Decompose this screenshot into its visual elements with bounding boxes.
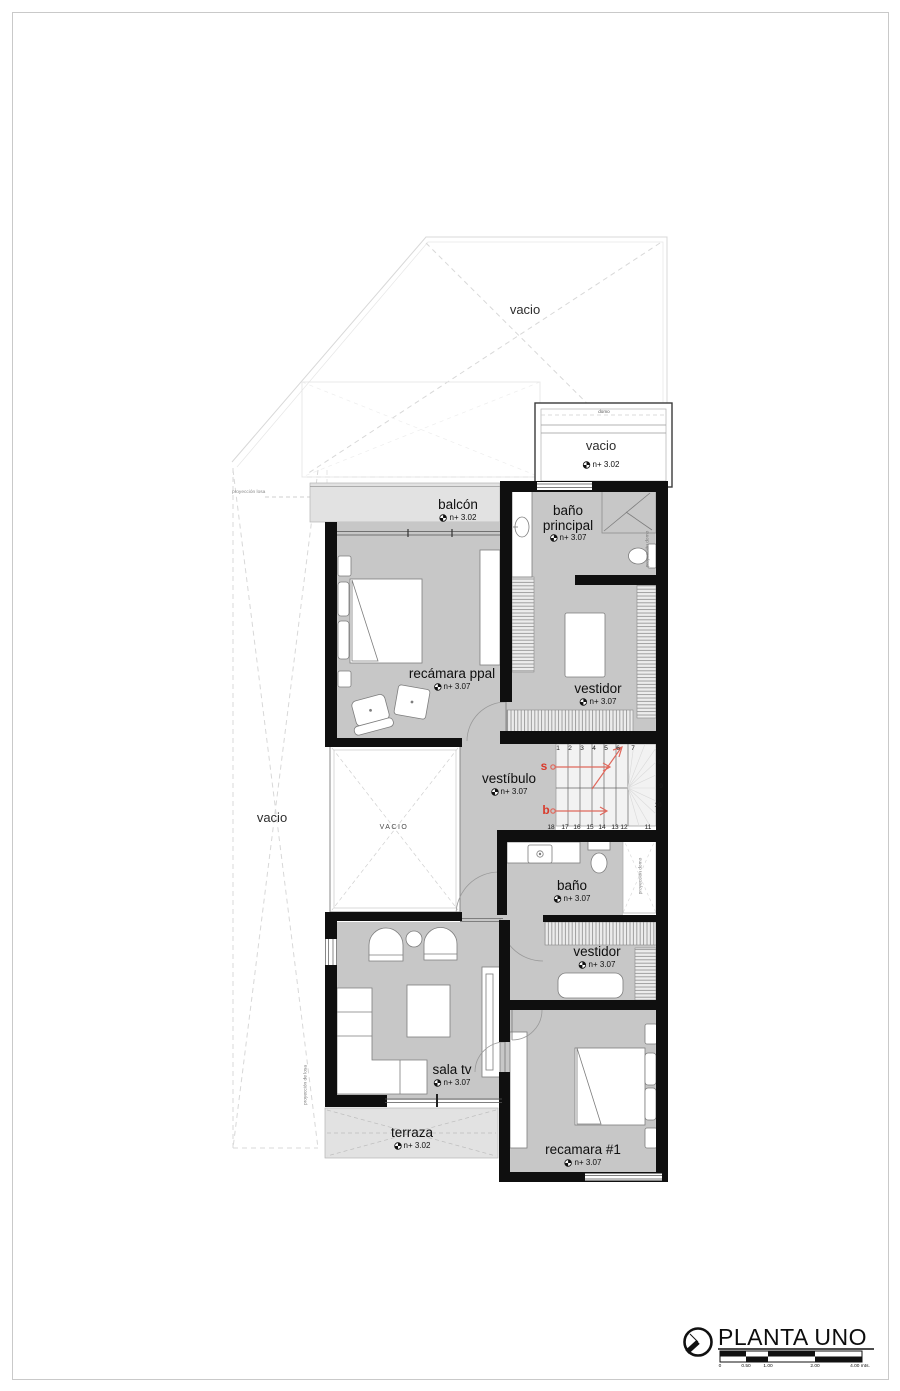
level-marker-icon (491, 788, 499, 796)
closet-island-south (558, 973, 623, 998)
level-value: n+ 3.07 (589, 961, 616, 970)
projection-domo-label-1: proyección domo (646, 531, 651, 568)
room-label-recamara-ppal: recámara ppal n+ 3.07 (409, 667, 495, 691)
level-value: n+ 3.02 (450, 514, 477, 523)
room-label-bano-principal: baño principal n+ 3.07 (543, 504, 593, 543)
level-value: n+ 3.07 (501, 788, 528, 797)
stair-number: 16 (573, 824, 580, 831)
level-value: n+ 3.07 (564, 895, 591, 904)
stair-number: 8 (658, 759, 662, 766)
room-label-vestidor-sur: vestidor n+ 3.07 (573, 945, 620, 969)
stair-number: 5 (604, 745, 608, 752)
level-marker-icon (583, 461, 591, 469)
stair-number: 13 (611, 824, 618, 831)
domo-label: domo (598, 409, 610, 414)
closet-island-north (565, 613, 605, 677)
stair-number: 2 (568, 745, 572, 752)
level-marker-icon (580, 698, 588, 706)
room-label-terraza: terraza n+ 3.02 (391, 1126, 433, 1150)
scale-tick: 1.00 (763, 1364, 772, 1369)
level-marker-icon (554, 895, 562, 903)
stair-number: 12 (620, 824, 627, 831)
void-label-side: vacio (257, 810, 287, 825)
void-label-interior: VACIO (380, 824, 409, 831)
room-name: sala tv (432, 1063, 471, 1078)
level-marker-icon (394, 1142, 402, 1150)
room-name: recámara ppal (409, 667, 495, 682)
room-name: vestidor (574, 682, 621, 697)
scale-tick: 0 (719, 1364, 722, 1369)
scale-tick: 0.50 (741, 1364, 750, 1369)
room-label-bano: baño n+ 3.07 (554, 879, 591, 903)
stair-number: 10 (654, 802, 661, 809)
level-value: n+ 3.07 (575, 1159, 602, 1168)
stair-number: 14 (598, 824, 605, 831)
room-name: principal (543, 519, 593, 534)
void-label-roof: vacio (510, 302, 540, 317)
domo-level: n+ 3.02 (583, 460, 620, 469)
stair-down-label: b (542, 803, 549, 817)
drawing-sheet: vacio vacio VACIO domo vacio n+ 3.02 bal… (0, 0, 900, 1391)
floor-plan-drawing (0, 0, 900, 1391)
level-marker-icon (579, 961, 587, 969)
stair-number: 18 (547, 824, 554, 831)
room-name: balcón (438, 498, 478, 513)
level-marker-icon (434, 683, 442, 691)
level-marker-icon (440, 514, 448, 522)
room-name: terraza (391, 1126, 433, 1141)
stair-number: 1 (556, 745, 560, 752)
projection-domo-label-2: proyección domo (639, 858, 644, 895)
level-value: n+ 3.07 (590, 698, 617, 707)
stair-number: 6 (616, 745, 620, 752)
stair-number: 9 (659, 783, 663, 790)
level-marker-icon (565, 1159, 573, 1167)
level-marker-icon (550, 534, 558, 542)
projection-losa-label: proyección losa (232, 490, 265, 495)
sheet-title: PLANTA UNO (718, 1324, 867, 1351)
level-value: n+ 3.02 (593, 460, 620, 469)
stair-number: 7 (631, 745, 635, 752)
room-name: vestíbulo (482, 772, 536, 787)
room-name: baño (554, 879, 591, 894)
level-marker-icon (434, 1079, 442, 1087)
level-value: n+ 3.07 (444, 1079, 471, 1088)
north-arrow-icon (685, 1329, 712, 1356)
room-name: recamara #1 (545, 1143, 621, 1158)
staircase (556, 744, 656, 826)
master-closet (480, 550, 500, 665)
stair-number: 3 (580, 745, 584, 752)
scale-tick: 4.00 mts. (850, 1364, 870, 1369)
room-label-balcon: balcón n+ 3.02 (438, 498, 478, 522)
room-label-recamara-1: recamara #1 n+ 3.07 (545, 1143, 621, 1167)
stair-up-label: s (541, 759, 548, 773)
level-value: n+ 3.02 (404, 1142, 431, 1151)
projection-de-losa-label: proyección de losa (304, 1065, 309, 1105)
room-name: vestidor (573, 945, 620, 960)
room-label-vestibulo: vestíbulo n+ 3.07 (482, 772, 536, 796)
level-value: n+ 3.07 (560, 534, 587, 543)
scale-tick: 2.00 (810, 1364, 819, 1369)
level-value: n+ 3.07 (444, 683, 471, 692)
stair-number: 17 (561, 824, 568, 831)
stair-number: 4 (592, 745, 596, 752)
room-name: baño (543, 504, 593, 519)
room-label-vestidor-norte: vestidor n+ 3.07 (574, 682, 621, 706)
room-label-sala-tv: sala tv n+ 3.07 (432, 1063, 471, 1087)
stair-number: 15 (586, 824, 593, 831)
scale-bar (720, 1351, 862, 1362)
stair-number: 11 (645, 824, 652, 831)
domo-void-label: vacio (586, 438, 616, 453)
